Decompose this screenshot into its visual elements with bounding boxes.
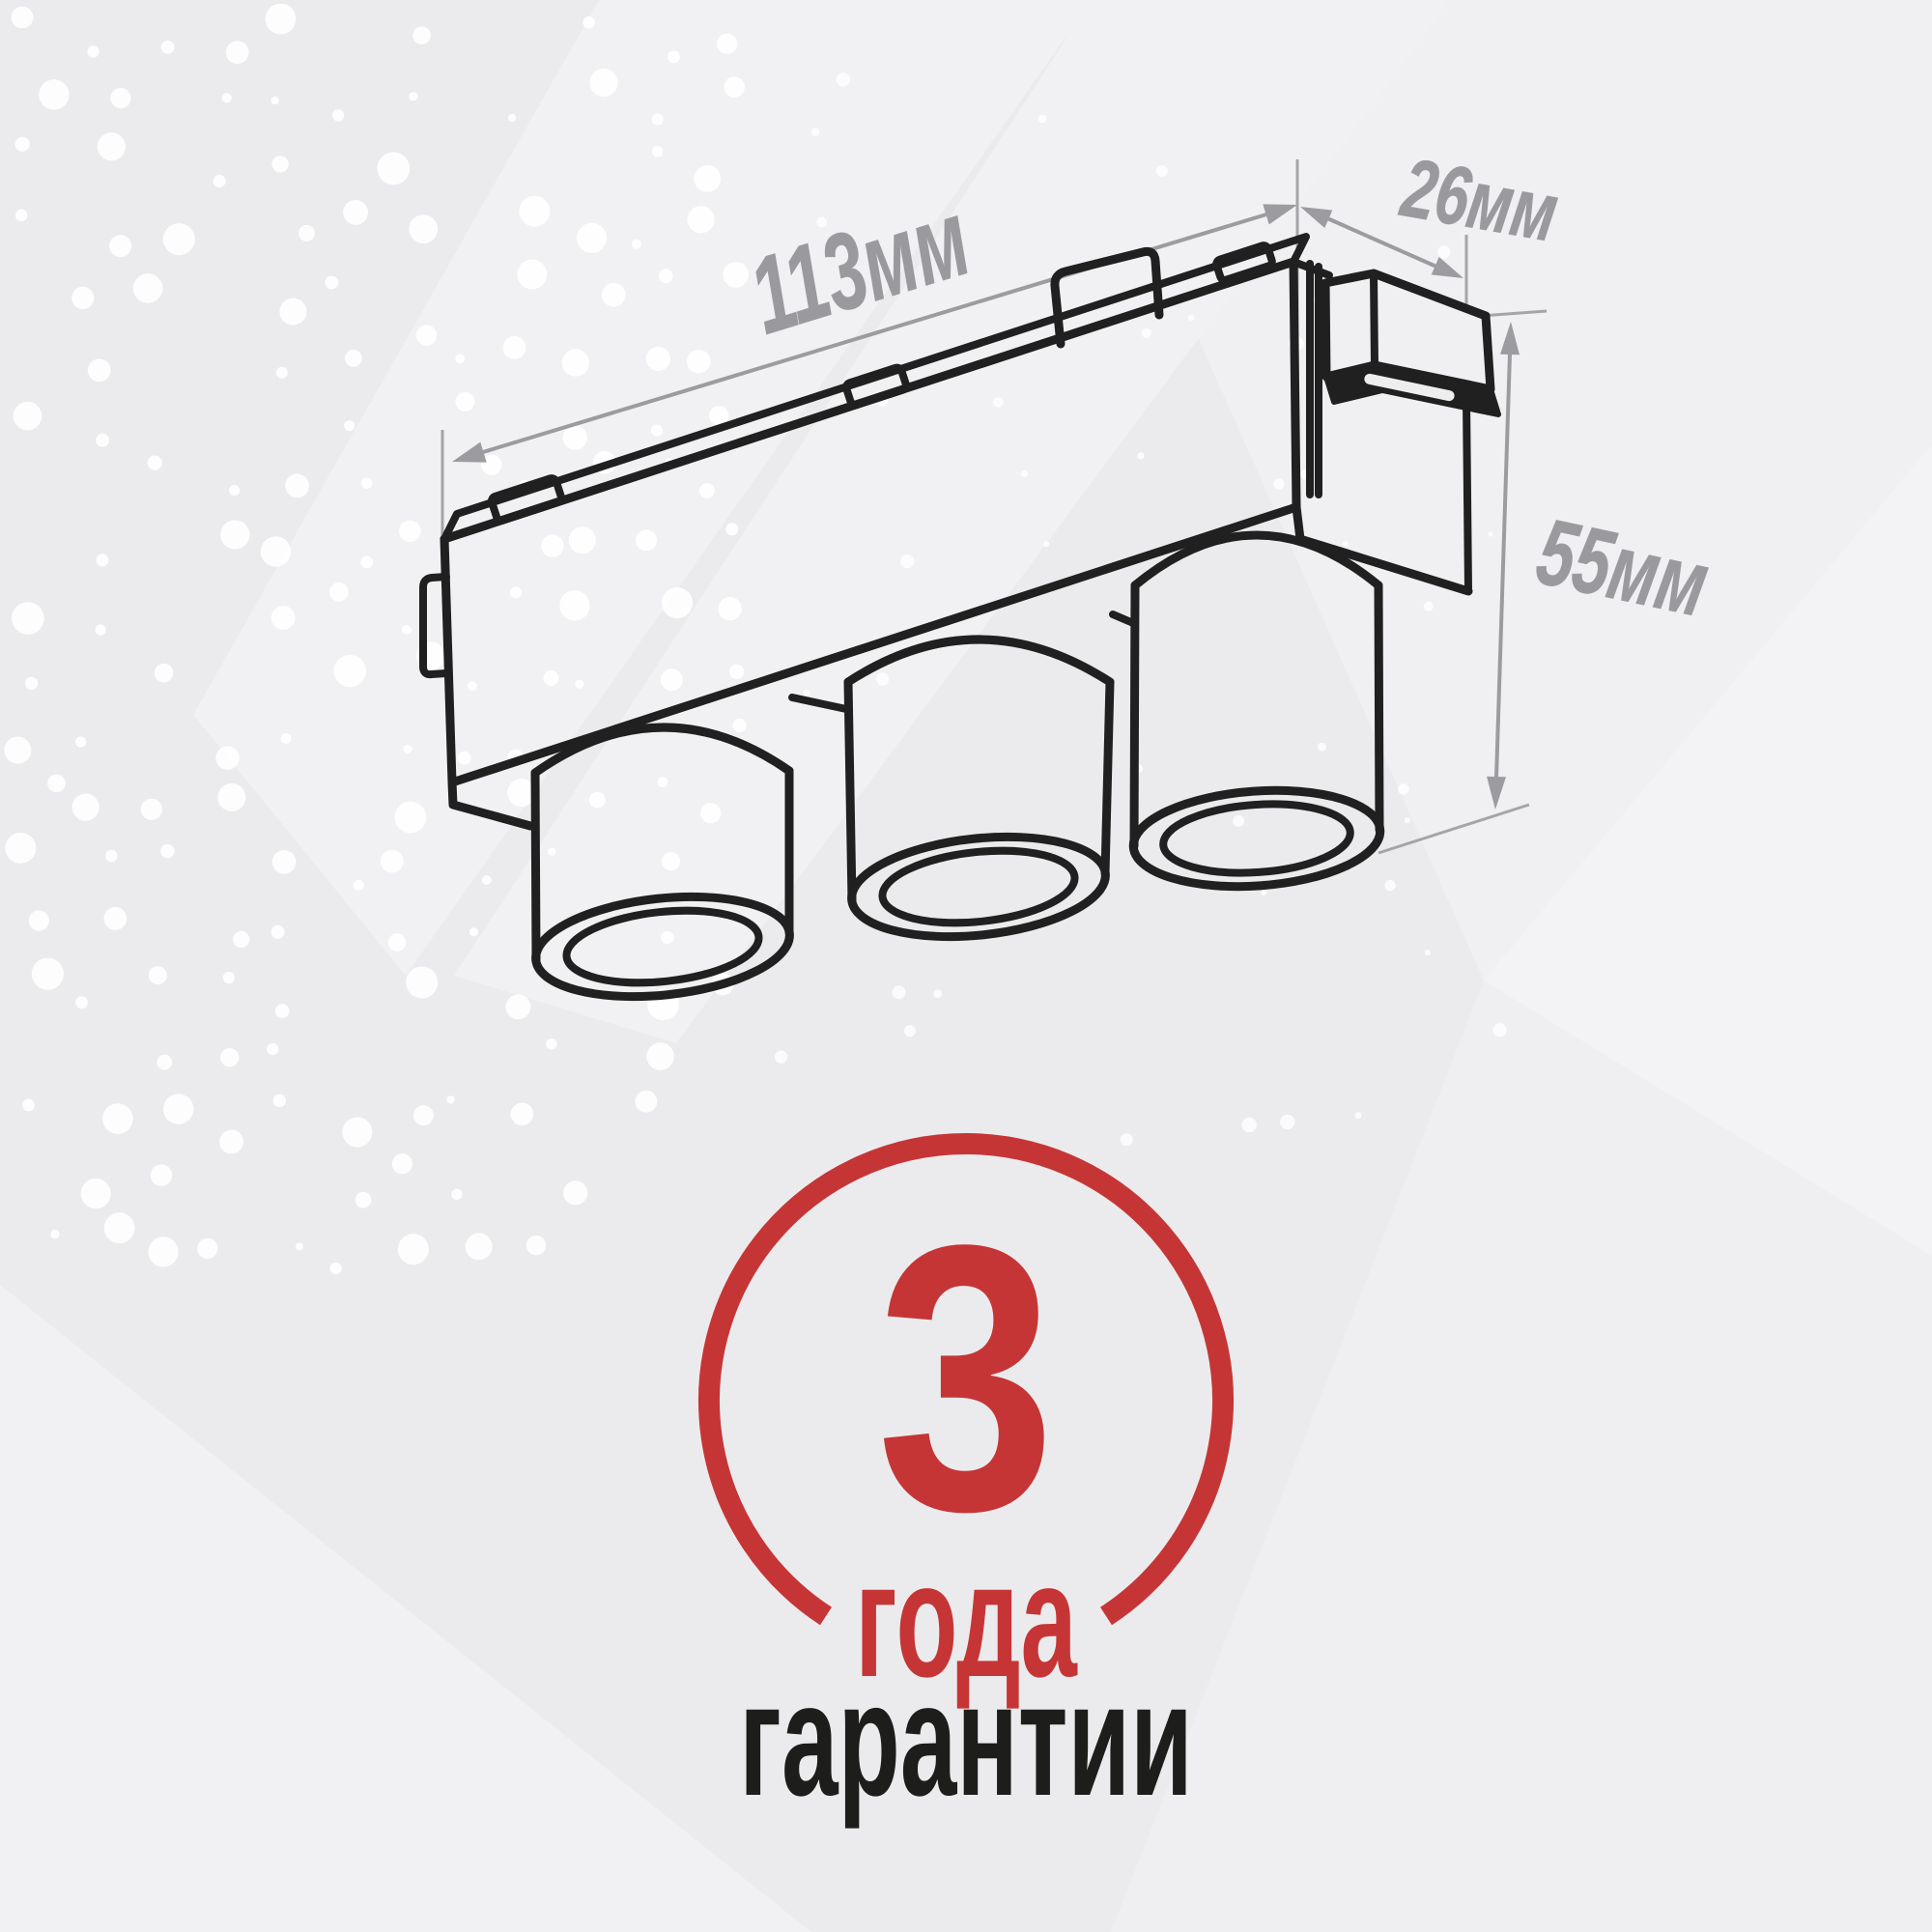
background-dot: [546, 1038, 557, 1050]
background-dot: [155, 664, 174, 683]
background-dot: [32, 958, 64, 990]
background-dot: [151, 1164, 172, 1185]
background-dot: [325, 276, 338, 290]
background-dot: [1233, 815, 1244, 827]
background-dot: [1188, 315, 1195, 322]
background-dot: [412, 26, 431, 44]
background-dot: [22, 1099, 35, 1112]
background-dot: [700, 803, 721, 823]
background-dot: [266, 4, 297, 35]
background-dot: [88, 359, 111, 383]
background-dot: [50, 1230, 59, 1238]
background-dot: [149, 966, 167, 984]
background-dot: [562, 349, 589, 376]
background-dot: [636, 1091, 658, 1113]
background-dot: [4, 737, 31, 764]
background-dot: [719, 597, 742, 620]
background-dot: [104, 1212, 135, 1243]
background-dot: [466, 1233, 493, 1260]
background-dot: [197, 1238, 217, 1259]
background-dot: [933, 989, 942, 998]
background-dot: [662, 852, 680, 870]
background-dot: [1261, 890, 1266, 895]
background-dot: [563, 425, 587, 449]
background-dot: [657, 777, 668, 787]
background-dot: [1242, 1118, 1257, 1132]
background-dot: [96, 434, 109, 447]
background-dot: [329, 1263, 341, 1274]
background-dot: [900, 554, 914, 568]
background-dot: [602, 283, 626, 307]
background-dot: [724, 76, 745, 98]
background-dot: [1043, 541, 1049, 547]
background-dot: [893, 985, 906, 999]
background-dot: [1142, 328, 1151, 338]
background-dot: [517, 260, 547, 290]
background-dot: [344, 420, 355, 431]
background-dot: [416, 326, 437, 346]
background-dot: [271, 925, 285, 939]
background-dot: [75, 736, 86, 747]
background-dot: [5, 833, 36, 864]
background-dot: [161, 41, 175, 54]
background-dot: [163, 1094, 193, 1123]
background-dot: [215, 746, 239, 769]
background-dot: [646, 1042, 674, 1070]
background-dot: [406, 967, 438, 999]
background-dot: [1318, 743, 1326, 752]
background-dot: [559, 590, 589, 620]
background-dot: [837, 72, 850, 86]
background-dot: [233, 931, 249, 948]
background-dot: [12, 602, 44, 635]
background-dot: [661, 668, 683, 691]
background-dot: [575, 680, 583, 689]
background-dot: [15, 210, 28, 222]
background-dot: [563, 1180, 587, 1205]
background-dot: [876, 672, 889, 685]
background-dot: [109, 235, 131, 257]
background-dot: [510, 586, 522, 598]
background-dot: [646, 347, 670, 371]
background-dot: [298, 225, 315, 241]
background-dot: [141, 799, 162, 820]
background-dot: [1493, 1023, 1507, 1037]
background-dot: [148, 1236, 178, 1266]
background-dot: [409, 92, 417, 100]
background-dot: [96, 625, 106, 636]
background-dot: [577, 223, 607, 253]
background-dot: [688, 206, 715, 233]
background-dot: [717, 34, 737, 54]
background-dot: [526, 1236, 546, 1255]
background-dot: [1405, 817, 1410, 823]
background-dot: [271, 156, 288, 172]
background-dot: [541, 535, 563, 557]
background-dot: [360, 556, 373, 569]
background-dot: [687, 350, 711, 374]
background-dot: [589, 792, 606, 809]
background-dot: [47, 775, 66, 793]
background-dot: [652, 146, 663, 156]
background-dot: [699, 483, 715, 498]
background-dot: [285, 474, 309, 498]
background-dot: [399, 521, 421, 543]
background-dot: [652, 114, 664, 126]
background-dot: [733, 719, 747, 732]
background-dot: [508, 114, 516, 122]
background-dot: [105, 850, 118, 863]
background-dot: [582, 16, 595, 29]
background-dot: [398, 1234, 429, 1264]
background-dot: [281, 733, 292, 744]
background-dot: [404, 745, 412, 753]
warranty-caption: гарантии: [739, 1649, 1192, 1830]
background-dot: [223, 972, 235, 983]
background-dot: [133, 273, 163, 303]
background-dot: [279, 298, 306, 326]
background-dot: [217, 783, 245, 811]
background-dot: [395, 802, 427, 834]
background-dot: [446, 1095, 454, 1103]
end-face-right: [1466, 401, 1468, 591]
background-dot: [775, 1051, 787, 1064]
background-dot: [392, 1153, 412, 1174]
background-dot: [377, 153, 410, 185]
background-dot: [75, 996, 88, 1009]
bar-right-edge: [1293, 262, 1296, 507]
background-dot: [519, 196, 550, 227]
background-dot: [993, 397, 1004, 408]
background-dot: [381, 850, 404, 873]
background-dot: [271, 606, 296, 630]
background-dot: [110, 88, 130, 108]
background-dot: [402, 625, 412, 635]
background-dot: [729, 665, 744, 679]
background-dot: [267, 1043, 278, 1055]
background-dot: [482, 875, 492, 885]
background-dot: [1355, 1112, 1362, 1119]
background-dot: [725, 523, 738, 535]
background-dot: [811, 128, 820, 136]
background-dot: [270, 97, 278, 104]
background-dot: [451, 1189, 462, 1200]
background-dot: [1343, 541, 1349, 547]
background-dot: [261, 536, 291, 566]
background-dot: [506, 994, 531, 1019]
background-dot: [904, 1025, 916, 1037]
background-dot: [409, 214, 438, 243]
background-dot: [661, 931, 673, 944]
product-diagram-canvas: 113мм 26мм 55мм: [0, 0, 1932, 1932]
background-dot: [160, 844, 174, 858]
background-dot: [1156, 165, 1168, 177]
background-dot: [354, 880, 364, 891]
background-dot: [219, 1130, 243, 1154]
background-dot: [636, 529, 657, 551]
background-dot: [226, 41, 249, 64]
background-dot: [468, 681, 477, 691]
background-dot: [81, 1179, 111, 1208]
background-dot: [343, 200, 368, 225]
background-dot: [25, 677, 38, 690]
background-dot: [72, 794, 99, 821]
background-dot: [332, 109, 344, 121]
warranty-years-number: 3: [876, 1168, 1055, 1590]
background-dot: [1137, 452, 1144, 459]
background-dot: [98, 132, 126, 160]
background-dot: [632, 240, 641, 249]
background-dot: [29, 910, 49, 930]
background-dot: [569, 526, 596, 554]
background-dot: [12, 7, 34, 29]
background-dot: [156, 1055, 172, 1070]
background-dot: [229, 485, 240, 496]
background-dot: [662, 587, 693, 618]
background-dot: [456, 392, 475, 412]
background-dot: [1424, 602, 1434, 611]
background-dot: [276, 367, 288, 379]
background-dot: [71, 287, 94, 309]
background-dot: [1038, 115, 1047, 124]
background-dot: [543, 670, 558, 686]
background-dot: [220, 520, 249, 549]
background-dot: [1437, 245, 1450, 258]
background-dot: [220, 1048, 239, 1066]
background-dot: [15, 137, 30, 152]
background-dot: [511, 1103, 534, 1126]
background-dot: [148, 456, 162, 470]
background-dot: [469, 927, 478, 936]
background-dot: [1121, 1133, 1133, 1146]
background-dot: [273, 1094, 286, 1107]
adapter-corner-edge: [1374, 273, 1375, 365]
background-dot: [1425, 950, 1431, 955]
background-dot: [1488, 531, 1492, 536]
background-dot: [694, 165, 721, 192]
background-dot: [334, 655, 366, 687]
background-dot: [548, 848, 555, 856]
background-dot: [87, 45, 99, 57]
background-dot: [1398, 783, 1409, 795]
background-dot: [329, 582, 349, 602]
background-dot: [413, 1105, 434, 1125]
background-dot: [668, 50, 680, 63]
background-dot: [589, 69, 617, 97]
background-dot: [1274, 479, 1285, 490]
background-dot: [213, 175, 226, 187]
background-dot: [388, 933, 407, 952]
background-dot: [97, 554, 109, 566]
background-dot: [361, 478, 373, 490]
background-dot: [163, 223, 195, 255]
background-dot: [275, 1004, 290, 1018]
background-dot: [296, 1242, 303, 1250]
background-dot: [659, 269, 673, 283]
background-dot: [455, 354, 465, 363]
background-dot: [102, 1103, 133, 1134]
background-dot: [503, 336, 526, 359]
background-dot: [1021, 470, 1028, 477]
background-dot: [104, 907, 128, 930]
background-dot: [272, 850, 297, 874]
background-dot: [222, 93, 232, 102]
background-dot: [1384, 880, 1395, 891]
background-dot: [342, 1118, 372, 1148]
background-dot: [39, 79, 69, 109]
background-dot: [14, 402, 43, 431]
background-dot: [345, 350, 362, 367]
background-dot: [355, 1192, 372, 1208]
background-dot: [803, 690, 810, 696]
background-dot: [458, 752, 471, 765]
background-dot: [1280, 1115, 1294, 1129]
background-dot: [651, 425, 663, 437]
